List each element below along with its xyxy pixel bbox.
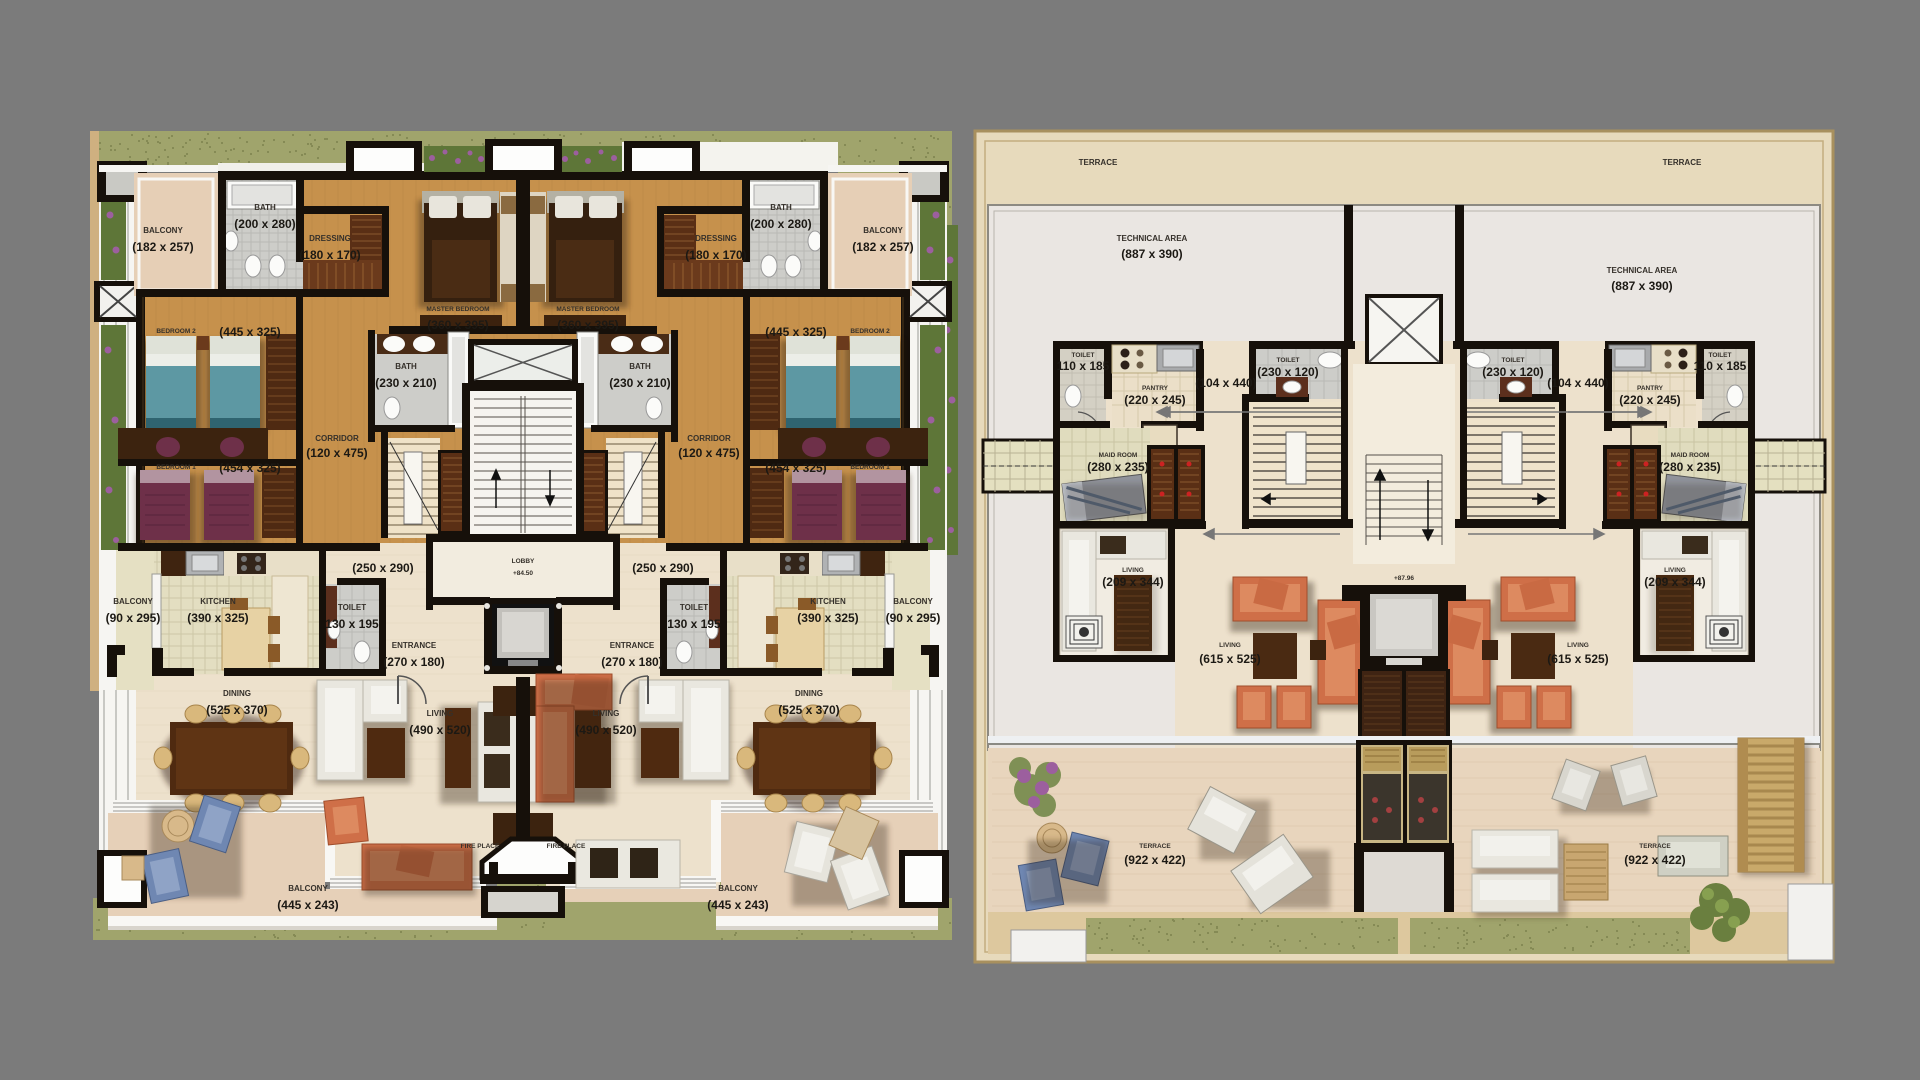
svg-text:DRESSING: DRESSING	[695, 234, 737, 243]
svg-text:(887 x 390): (887 x 390)	[1121, 247, 1182, 261]
svg-text:110 x 185: 110 x 185	[1057, 359, 1110, 373]
svg-text:(445 x 243): (445 x 243)	[707, 898, 768, 912]
svg-text:CORRIDOR: CORRIDOR	[687, 434, 731, 443]
svg-text:TERRACE: TERRACE	[1663, 158, 1702, 167]
svg-text:(120 x 475): (120 x 475)	[678, 446, 739, 460]
svg-text:(120 x 475): (120 x 475)	[306, 446, 367, 460]
svg-text:(104 x 440): (104 x 440)	[1547, 376, 1608, 390]
svg-text:(182 x 257): (182 x 257)	[132, 240, 193, 254]
svg-text:BALCONY: BALCONY	[893, 597, 933, 606]
svg-text:TOILET: TOILET	[1072, 352, 1095, 359]
svg-text:DRESSING: DRESSING	[309, 234, 351, 243]
svg-text:CORRIDOR: CORRIDOR	[315, 434, 359, 443]
svg-text:(525 x 370): (525 x 370)	[206, 703, 267, 717]
svg-text:BALCONY: BALCONY	[863, 226, 903, 235]
svg-text:(270 x 180): (270 x 180)	[383, 655, 444, 669]
svg-text:BATH: BATH	[395, 362, 417, 371]
svg-text:(209 x 344): (209 x 344)	[1644, 575, 1705, 589]
svg-text:(390 x 325): (390 x 325)	[187, 611, 248, 625]
svg-text:KITCHEN: KITCHEN	[810, 597, 846, 606]
svg-text:(230 x 210): (230 x 210)	[375, 376, 436, 390]
svg-text:BATH: BATH	[254, 203, 276, 212]
svg-text:(200 x 280): (200 x 280)	[750, 217, 811, 231]
svg-text:BEDROOM 2: BEDROOM 2	[850, 328, 890, 335]
svg-text:PANTRY: PANTRY	[1637, 385, 1664, 392]
svg-text:(280 x 235): (280 x 235)	[1659, 460, 1720, 474]
svg-text:+87.96: +87.96	[1394, 575, 1414, 582]
svg-text:MAID ROOM: MAID ROOM	[1671, 452, 1710, 459]
svg-text:(454 x 325): (454 x 325)	[765, 461, 826, 475]
svg-text:TOILET: TOILET	[680, 603, 708, 612]
svg-text:(250 x 290): (250 x 290)	[632, 561, 693, 575]
svg-text:+84.50: +84.50	[513, 570, 533, 577]
svg-text:(182 x 257): (182 x 257)	[852, 240, 913, 254]
svg-text:BEDROOM 2: BEDROOM 2	[156, 328, 196, 335]
svg-text:(104 x 440): (104 x 440)	[1195, 376, 1256, 390]
svg-text:TECHNICAL AREA: TECHNICAL AREA	[1607, 266, 1678, 275]
svg-text:(360 x 395): (360 x 395)	[427, 318, 488, 332]
svg-text:(180 x 170): (180 x 170)	[685, 248, 746, 262]
svg-text:LOBBY: LOBBY	[512, 558, 535, 565]
svg-text:BATH: BATH	[770, 203, 792, 212]
svg-text:TOILET: TOILET	[1502, 357, 1525, 364]
svg-text:130 x 195: 130 x 195	[325, 617, 379, 631]
svg-text:(90 x 295): (90 x 295)	[106, 611, 161, 625]
svg-text:(230 x 120): (230 x 120)	[1257, 365, 1318, 379]
svg-text:DINING: DINING	[223, 689, 251, 698]
svg-text:BALCONY: BALCONY	[288, 884, 328, 893]
svg-text:LIVING: LIVING	[1664, 567, 1686, 574]
svg-text:TERRACE: TERRACE	[1139, 843, 1171, 850]
svg-text:(360 x 395): (360 x 395)	[557, 318, 618, 332]
svg-text:(200 x 280): (200 x 280)	[234, 217, 295, 231]
svg-text:KITCHEN: KITCHEN	[200, 597, 236, 606]
svg-text:(887 x 390): (887 x 390)	[1611, 279, 1672, 293]
svg-text:TOILET: TOILET	[1709, 352, 1732, 359]
svg-text:BALCONY: BALCONY	[113, 597, 153, 606]
svg-text:FIRE PLACE: FIRE PLACE	[461, 843, 500, 850]
svg-text:(390 x 325): (390 x 325)	[797, 611, 858, 625]
svg-text:LIVING: LIVING	[1219, 642, 1241, 649]
svg-text:LIVING: LIVING	[593, 709, 620, 718]
svg-text:(922 x 422): (922 x 422)	[1624, 853, 1685, 867]
svg-text:TECHNICAL AREA: TECHNICAL AREA	[1117, 234, 1188, 243]
svg-text:(90 x 295): (90 x 295)	[886, 611, 941, 625]
svg-text:(445 x 243): (445 x 243)	[277, 898, 338, 912]
svg-text:BATH: BATH	[629, 362, 651, 371]
svg-text:(922 x 422): (922 x 422)	[1124, 853, 1185, 867]
svg-text:(490 x 520): (490 x 520)	[575, 723, 636, 737]
svg-text:(615 x 525): (615 x 525)	[1199, 652, 1260, 666]
svg-text:(180 x 170): (180 x 170)	[299, 248, 360, 262]
svg-text:(230 x 120): (230 x 120)	[1482, 365, 1543, 379]
svg-text:LIVING: LIVING	[1567, 642, 1589, 649]
svg-text:TOILET: TOILET	[1277, 357, 1300, 364]
svg-text:BEDROOM 1: BEDROOM 1	[156, 464, 196, 471]
svg-text:TERRACE: TERRACE	[1079, 158, 1118, 167]
svg-text:(525 x 370): (525 x 370)	[778, 703, 839, 717]
svg-text:(230 x 210): (230 x 210)	[609, 376, 670, 390]
svg-text:FIRE PLACE: FIRE PLACE	[547, 843, 586, 850]
svg-text:MASTER BEDROOM: MASTER BEDROOM	[426, 306, 489, 313]
svg-text:(270 x 180): (270 x 180)	[601, 655, 662, 669]
svg-text:DINING: DINING	[795, 689, 823, 698]
svg-text:MAID ROOM: MAID ROOM	[1099, 452, 1138, 459]
svg-text:TOILET: TOILET	[338, 603, 366, 612]
svg-text:130 x 195: 130 x 195	[667, 617, 721, 631]
svg-text:(615 x 525): (615 x 525)	[1547, 652, 1608, 666]
svg-text:(445 x 325): (445 x 325)	[219, 325, 280, 339]
svg-text:(209 x 344): (209 x 344)	[1102, 575, 1163, 589]
svg-text:LIVING: LIVING	[1122, 567, 1144, 574]
svg-text:(490 x 520): (490 x 520)	[409, 723, 470, 737]
svg-text:TERRACE: TERRACE	[1639, 843, 1671, 850]
svg-text:MASTER BEDROOM: MASTER BEDROOM	[556, 306, 619, 313]
svg-text:(454 x 325): (454 x 325)	[219, 461, 280, 475]
svg-text:(220 x 245): (220 x 245)	[1124, 393, 1185, 407]
svg-text:LIVING: LIVING	[427, 709, 454, 718]
svg-text:(220 x 245): (220 x 245)	[1619, 393, 1680, 407]
svg-text:BEDROOM 1: BEDROOM 1	[850, 464, 890, 471]
svg-text:(250 x 290): (250 x 290)	[352, 561, 413, 575]
svg-text:110 x 185: 110 x 185	[1694, 359, 1747, 373]
svg-text:ENTRANCE: ENTRANCE	[610, 641, 655, 650]
svg-text:BALCONY: BALCONY	[718, 884, 758, 893]
svg-text:(445 x 325): (445 x 325)	[765, 325, 826, 339]
svg-text:BALCONY: BALCONY	[143, 226, 183, 235]
svg-text:ENTRANCE: ENTRANCE	[392, 641, 437, 650]
svg-text:PANTRY: PANTRY	[1142, 385, 1169, 392]
svg-text:(280 x 235): (280 x 235)	[1087, 460, 1148, 474]
